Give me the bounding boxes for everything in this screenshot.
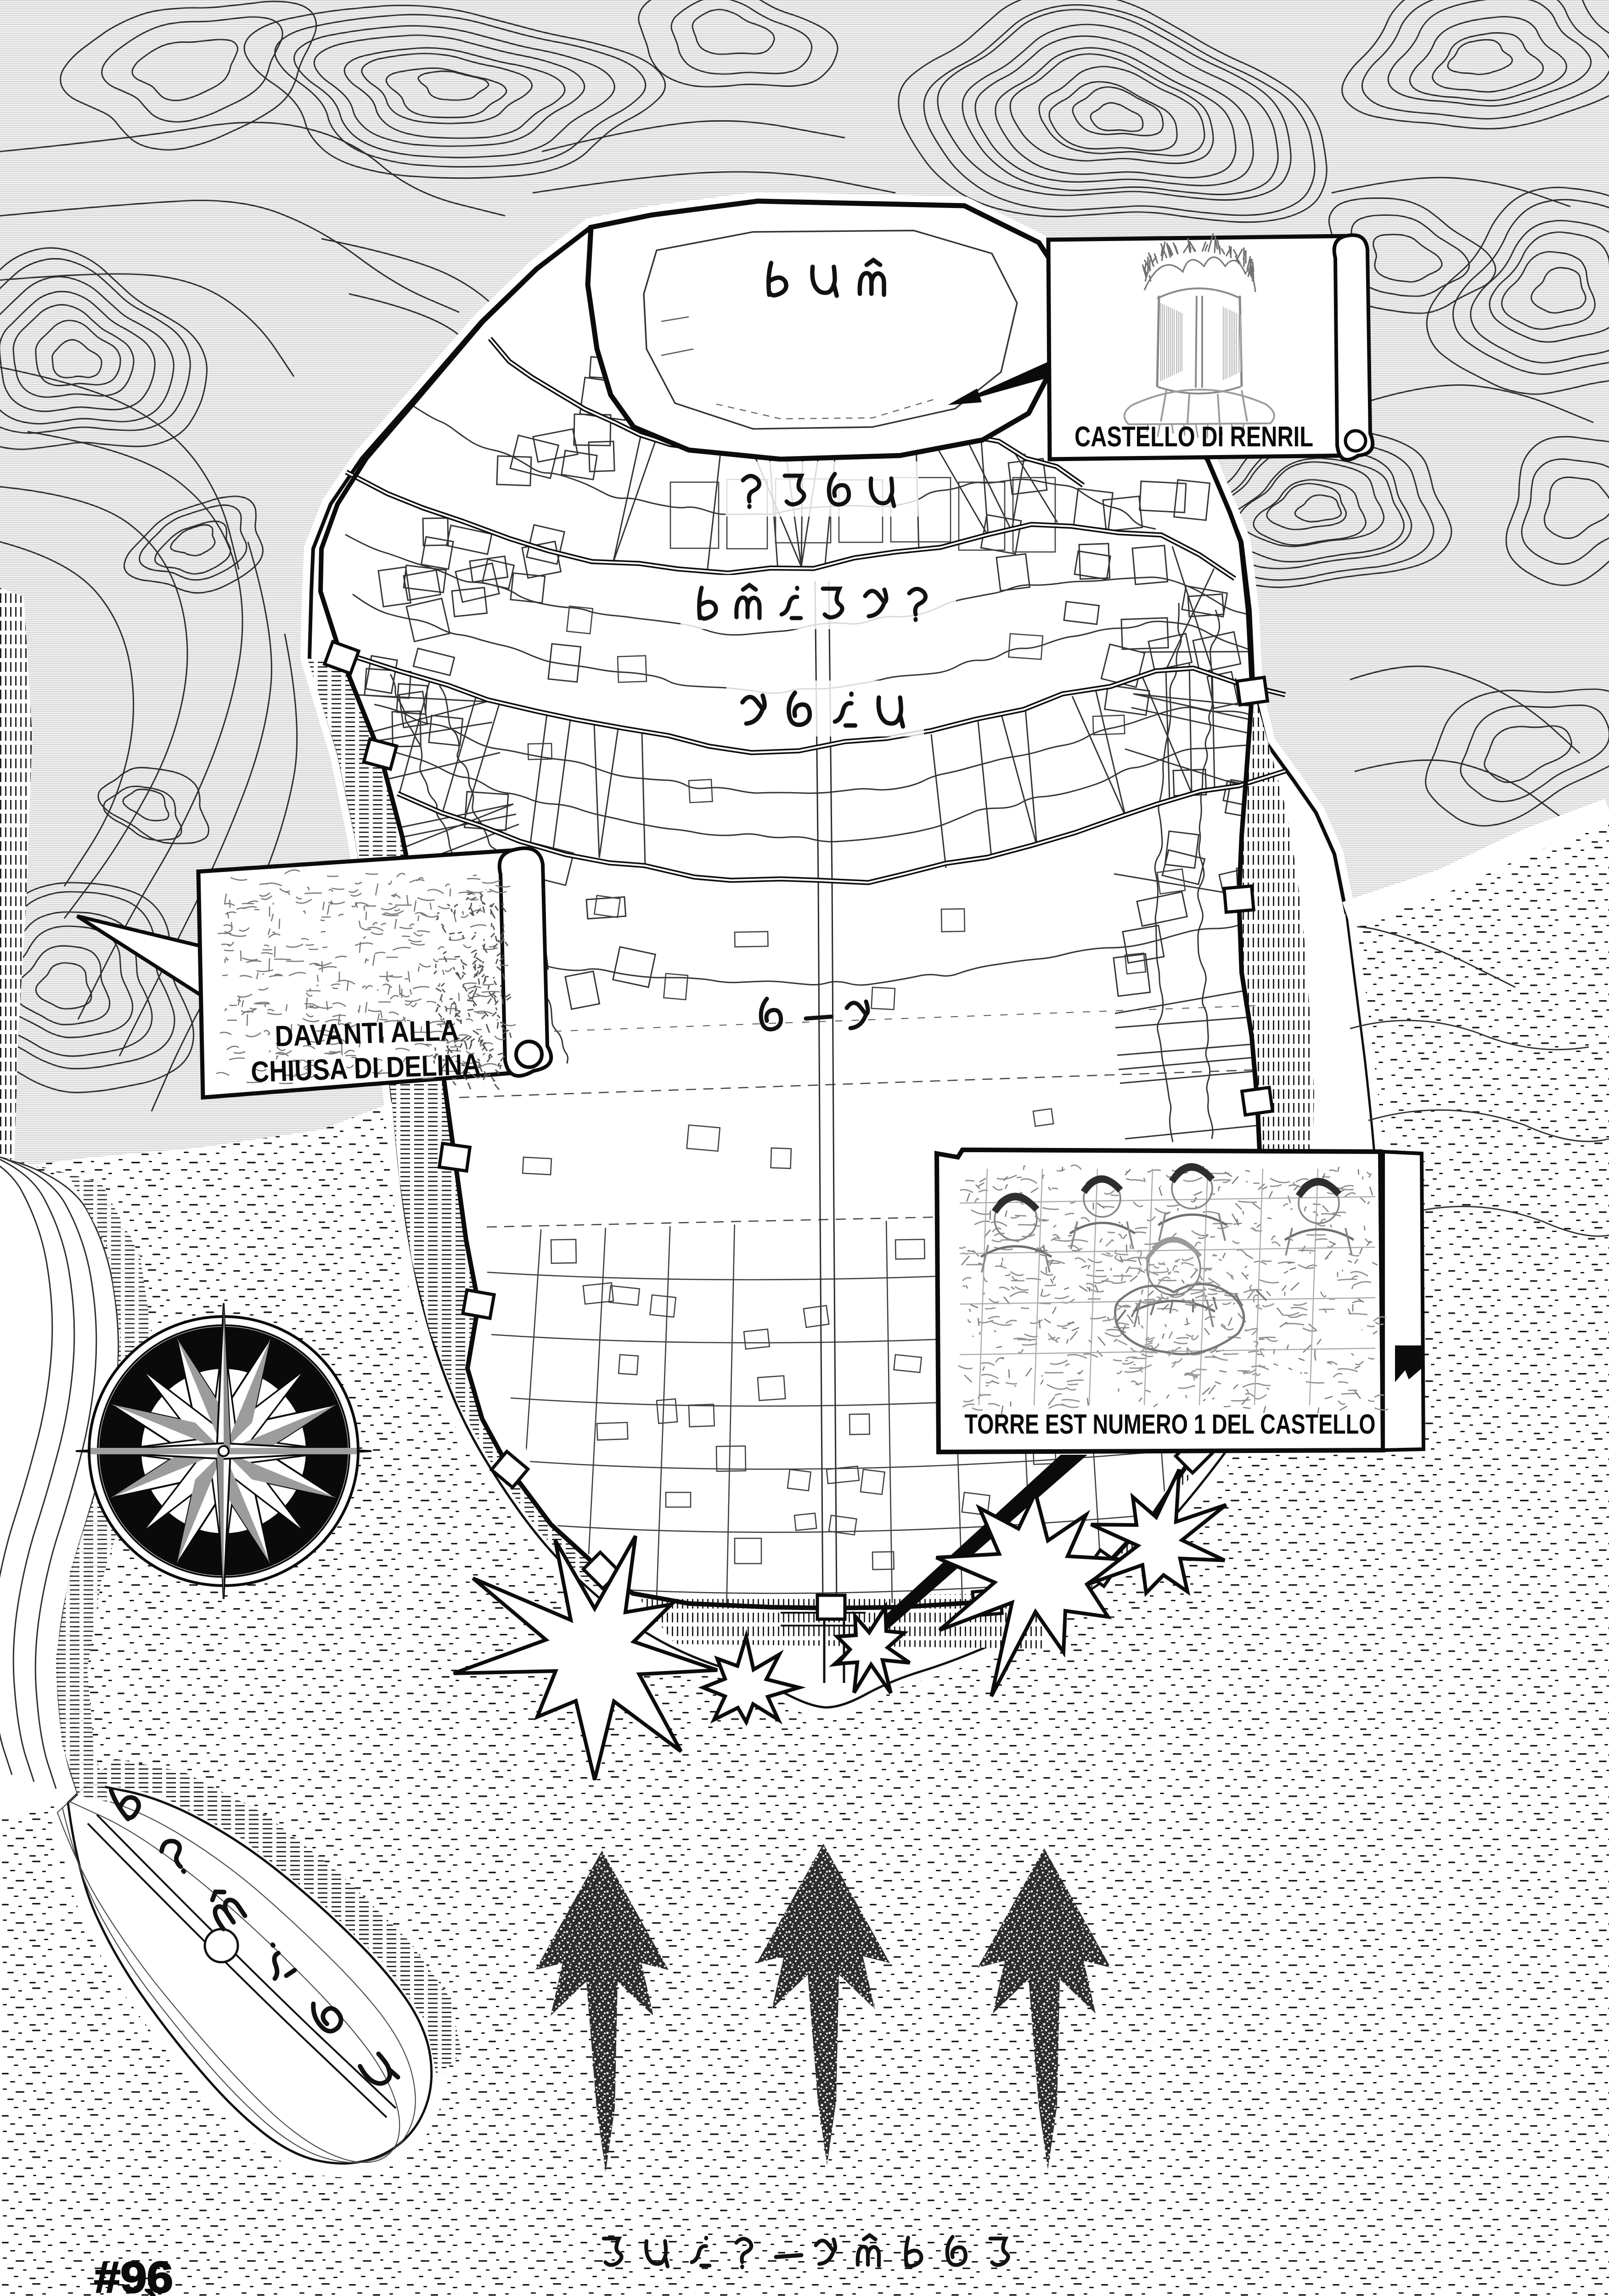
svg-text:CASTELLO DI RENRIL: CASTELLO DI RENRIL	[1075, 421, 1313, 453]
svg-text:DAVANTI ALLA: DAVANTI ALLA	[274, 1013, 459, 1053]
svg-text:CIÒ CHE LOGORA: CIÒ CHE LOGORA	[96, 2289, 443, 2296]
svg-text:TORRE EST NUMERO 1 DEL CASTELL: TORRE EST NUMERO 1 DEL CASTELLO	[965, 1409, 1376, 1440]
